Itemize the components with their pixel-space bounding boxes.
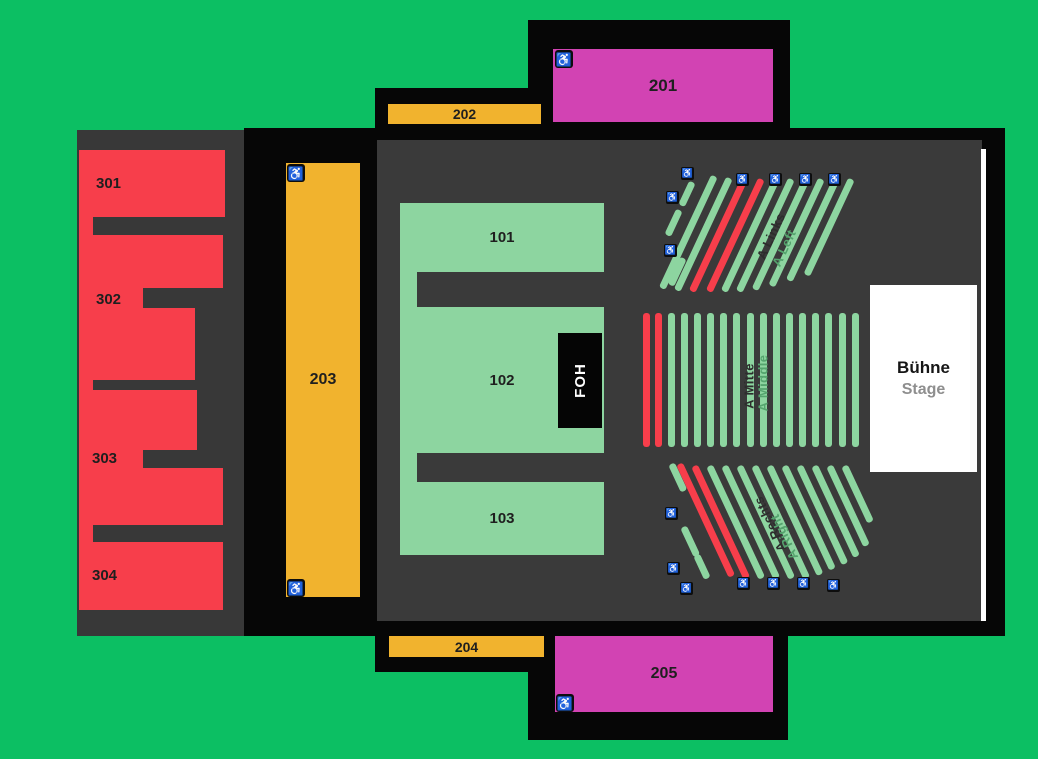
- seat-row[interactable]: [664, 209, 682, 237]
- wheelchair-icon[interactable]: ♿: [681, 167, 694, 180]
- stage-subtitle: Stage: [902, 381, 946, 399]
- block-304-label: 304: [92, 568, 117, 583]
- section-rechts[interactable]: ♿♿♿♿♿♿♿: [645, 455, 860, 617]
- block-103-label: 103: [489, 510, 514, 527]
- block-101[interactable]: 101: [400, 203, 604, 272]
- wheelchair-icon[interactable]: ♿: [828, 173, 841, 186]
- seat-row[interactable]: [773, 313, 780, 447]
- seat-row[interactable]: [707, 313, 714, 447]
- wheelchair-icon[interactable]: ♿: [556, 694, 574, 712]
- stage-title: Bühne: [897, 358, 950, 378]
- seat-row[interactable]: [720, 313, 727, 447]
- block-203-label: 203: [310, 371, 337, 389]
- block-204-label: 204: [455, 639, 478, 655]
- section-mitte-label-de: A Mitte: [742, 363, 757, 409]
- block-300s-connector: [79, 150, 93, 610]
- block-303-label: 303: [92, 451, 117, 466]
- foh-booth: FOH: [558, 333, 602, 428]
- stage: Bühne Stage: [870, 285, 977, 472]
- seat-row[interactable]: [678, 181, 695, 207]
- wheelchair-icon[interactable]: ♿: [737, 577, 750, 590]
- seat-row[interactable]: [825, 313, 832, 447]
- block-302-label: 302: [96, 292, 121, 307]
- seat-row[interactable]: [852, 313, 859, 447]
- wheelchair-icon[interactable]: ♿: [287, 164, 305, 182]
- seat-row[interactable]: [799, 313, 806, 447]
- wheelchair-icon[interactable]: ♿: [555, 50, 573, 68]
- seat-row[interactable]: [812, 313, 819, 447]
- seat-row[interactable]: [786, 313, 793, 447]
- section-links[interactable]: ♿♿♿♿♿♿♿: [645, 158, 860, 306]
- block-102-label: 102: [489, 372, 514, 389]
- seat-row[interactable]: [680, 526, 699, 558]
- wheelchair-icon[interactable]: ♿: [767, 577, 780, 590]
- wheelchair-icon[interactable]: ♿: [799, 173, 812, 186]
- foh-label: FOH: [571, 363, 588, 398]
- block-202-label: 202: [453, 106, 476, 122]
- block-205[interactable]: 205: [555, 636, 773, 712]
- wheelchair-icon[interactable]: ♿: [736, 173, 749, 186]
- seat-row[interactable]: [839, 313, 846, 447]
- wheelchair-icon[interactable]: ♿: [287, 579, 305, 597]
- block-301-label: 301: [96, 176, 121, 191]
- section-mitte-label-en: A Middle: [756, 355, 771, 412]
- seat-row[interactable]: [668, 313, 675, 447]
- wheelchair-icon[interactable]: ♿: [664, 244, 677, 257]
- block-201[interactable]: 201: [553, 49, 773, 122]
- seat-row[interactable]: [694, 313, 701, 447]
- wheelchair-icon[interactable]: ♿: [665, 507, 678, 520]
- block-303-upper[interactable]: [79, 390, 197, 450]
- block-202[interactable]: 202: [388, 104, 541, 124]
- wheelchair-icon[interactable]: ♿: [827, 579, 840, 592]
- venue-seating-map: 301 302 303 304 203 ♿ ♿ 201 ♿ 202 204 20…: [0, 0, 1038, 759]
- seat-row[interactable]: [676, 463, 734, 578]
- wheelchair-icon[interactable]: ♿: [666, 191, 679, 204]
- wheelchair-icon[interactable]: ♿: [797, 577, 810, 590]
- wheelchair-icon[interactable]: ♿: [680, 582, 693, 595]
- block-302[interactable]: [79, 308, 195, 380]
- seat-row[interactable]: [655, 313, 662, 447]
- seat-row[interactable]: [643, 313, 650, 447]
- block-103[interactable]: 103: [400, 482, 604, 555]
- block-203[interactable]: 203: [286, 163, 360, 597]
- block-101-label: 101: [489, 229, 514, 246]
- seat-row[interactable]: [733, 313, 740, 447]
- block-205-label: 205: [651, 665, 678, 683]
- wheelchair-icon[interactable]: ♿: [667, 562, 680, 575]
- block-303[interactable]: [79, 468, 223, 525]
- seat-row[interactable]: [681, 313, 688, 447]
- stage-front-line: [981, 149, 986, 621]
- wheelchair-icon[interactable]: ♿: [769, 173, 782, 186]
- seat-row[interactable]: [693, 554, 710, 580]
- block-204[interactable]: 204: [389, 636, 544, 657]
- block-302-upper[interactable]: [79, 235, 223, 288]
- block-201-label: 201: [649, 76, 677, 96]
